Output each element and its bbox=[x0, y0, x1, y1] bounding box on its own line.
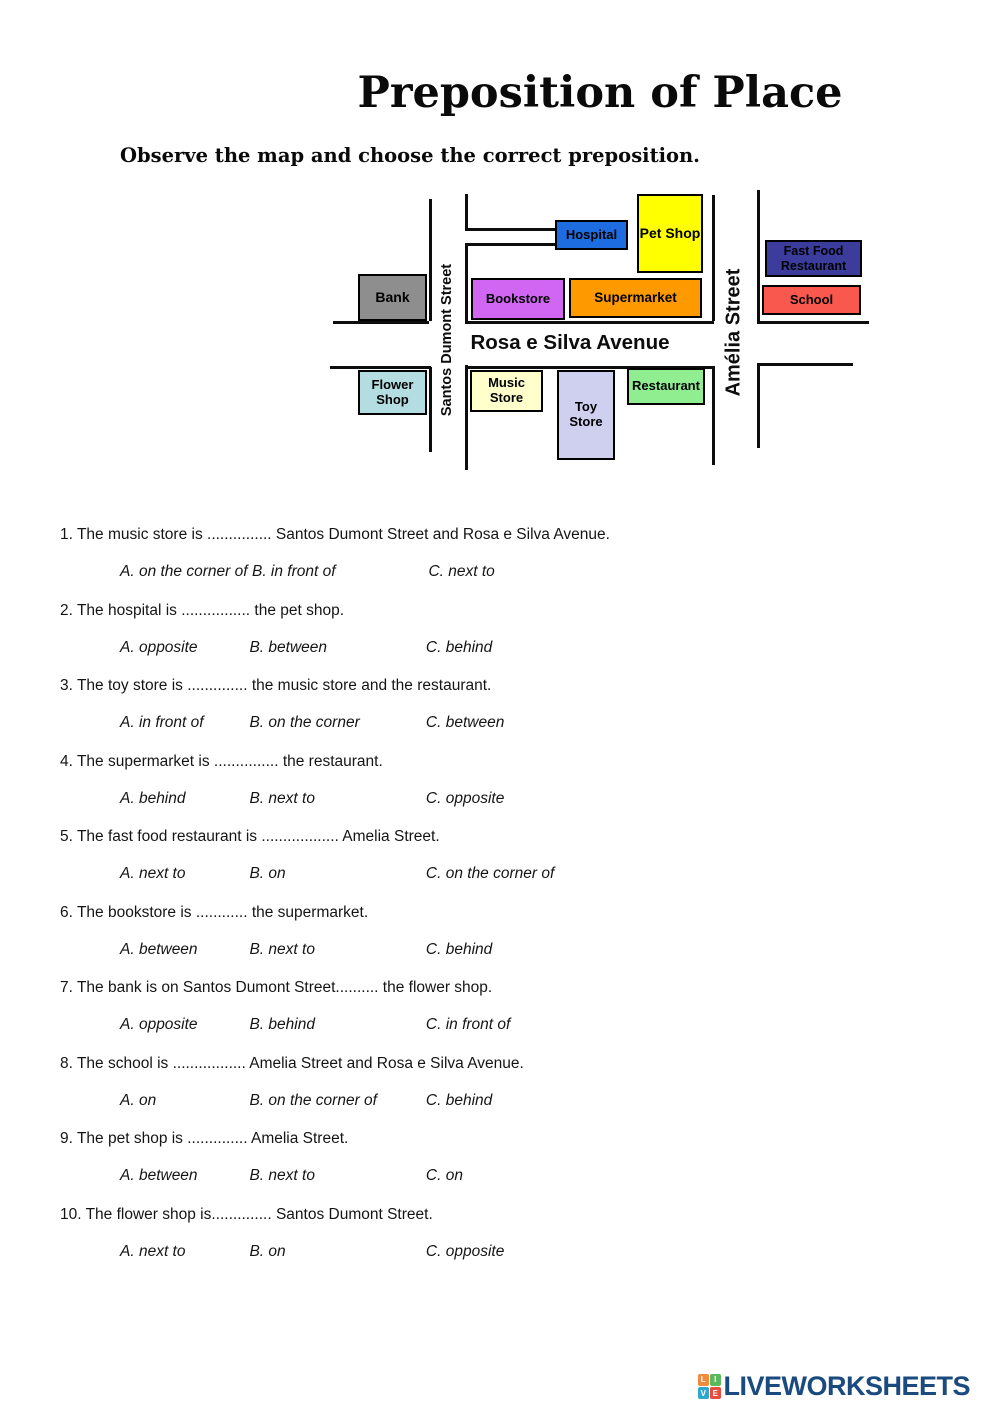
option-c[interactable]: C. on bbox=[426, 1167, 463, 1185]
street-line bbox=[712, 195, 715, 321]
logo-tile-i: I bbox=[710, 1374, 721, 1386]
building-label: Toy Store bbox=[559, 400, 613, 430]
street-line bbox=[429, 367, 432, 452]
option-b[interactable]: B. next to bbox=[249, 1167, 421, 1185]
building-label: Bookstore bbox=[486, 292, 550, 307]
option-c[interactable]: C. between bbox=[426, 714, 504, 732]
street-line bbox=[757, 190, 760, 321]
street-line bbox=[712, 366, 715, 465]
street-line bbox=[465, 365, 468, 470]
option-c[interactable]: C. behind bbox=[426, 639, 492, 657]
question-text: 7. The bank is on Santos Dumont Street..… bbox=[60, 979, 492, 997]
street-line bbox=[465, 194, 468, 229]
street-line bbox=[429, 199, 432, 321]
option-a[interactable]: A. next to bbox=[120, 865, 245, 883]
option-b[interactable]: B. behind bbox=[249, 1016, 421, 1034]
question-8: 8. The school is ................. Ameli… bbox=[60, 1055, 960, 1131]
question-text: 4. The supermarket is ............... th… bbox=[60, 753, 383, 771]
instruction-text: Observe the map and choose the correct p… bbox=[120, 144, 700, 167]
option-a[interactable]: A. opposite bbox=[120, 639, 245, 657]
question-text: 9. The pet shop is .............. Amelia… bbox=[60, 1130, 348, 1148]
option-c[interactable]: C. opposite bbox=[426, 1243, 504, 1261]
street-line bbox=[333, 321, 429, 324]
question-text: 10. The flower shop is.............. San… bbox=[60, 1206, 433, 1224]
street-line bbox=[465, 321, 714, 324]
question-options: A. in front of B. on the corner C. betwe… bbox=[120, 714, 504, 732]
question-options: A. opposite B. behind C. in front of bbox=[120, 1016, 510, 1034]
question-options: A. on the corner of B. in front of C. ne… bbox=[120, 563, 495, 581]
option-b[interactable]: B. on bbox=[249, 865, 421, 883]
building-fast-food-restaurant: Fast Food Restaurant bbox=[765, 240, 862, 277]
street-label-amelia: Amélia Street bbox=[723, 253, 746, 413]
option-b[interactable]: B. in front of bbox=[252, 563, 424, 581]
liveworksheets-grid-icon: L I V E bbox=[698, 1374, 721, 1400]
question-options: A. opposite B. between C. behind bbox=[120, 639, 492, 657]
question-options: A. between B. next to C. on bbox=[120, 1167, 463, 1185]
building-school: School bbox=[762, 285, 861, 315]
option-c[interactable]: C. behind bbox=[426, 1092, 492, 1110]
building-music-store: Music Store bbox=[470, 370, 543, 412]
question-list: 1. The music store is ............... Sa… bbox=[60, 526, 960, 1281]
street-line bbox=[465, 243, 468, 322]
building-supermarket: Supermarket bbox=[569, 278, 702, 318]
building-label: Restaurant bbox=[632, 379, 700, 394]
option-c[interactable]: C. on the corner of bbox=[426, 865, 554, 883]
street-line bbox=[757, 321, 869, 324]
question-options: A. next to B. on C. on the corner of bbox=[120, 865, 554, 883]
option-a[interactable]: A. between bbox=[120, 1167, 245, 1185]
question-9: 9. The pet shop is .............. Amelia… bbox=[60, 1130, 960, 1206]
option-b[interactable]: B. on the corner bbox=[249, 714, 421, 732]
option-b[interactable]: B. next to bbox=[249, 941, 421, 959]
street-line bbox=[330, 366, 431, 369]
question-text: 1. The music store is ............... Sa… bbox=[60, 526, 610, 544]
building-label: Hospital bbox=[566, 228, 617, 243]
building-label: School bbox=[790, 293, 833, 308]
logo-tile-v: V bbox=[698, 1387, 709, 1399]
option-a[interactable]: A. behind bbox=[120, 790, 245, 808]
building-label: Pet Shop bbox=[640, 225, 701, 241]
option-a[interactable]: A. opposite bbox=[120, 1016, 245, 1034]
building-hospital: Hospital bbox=[555, 220, 628, 250]
building-label: Flower Shop bbox=[360, 378, 425, 408]
option-b[interactable]: B. on bbox=[249, 1243, 421, 1261]
option-a[interactable]: A. on bbox=[120, 1092, 245, 1110]
map: Santos Dumont Street Amélia Street Rosa … bbox=[330, 185, 882, 477]
building-pet-shop: Pet Shop bbox=[637, 194, 703, 273]
option-c[interactable]: C. in front of bbox=[426, 1016, 510, 1034]
option-a[interactable]: A. between bbox=[120, 941, 245, 959]
question-2: 2. The hospital is ................ the … bbox=[60, 602, 960, 678]
question-options: A. on B. on the corner of C. behind bbox=[120, 1092, 492, 1110]
building-label: Supermarket bbox=[594, 290, 677, 306]
street-label-rosa-e-silva: Rosa e Silva Avenue bbox=[465, 331, 675, 355]
street-line bbox=[465, 228, 555, 231]
option-b[interactable]: B. next to bbox=[249, 790, 421, 808]
page-title: Preposition of Place bbox=[200, 68, 1000, 118]
question-text: 5. The fast food restaurant is .........… bbox=[60, 828, 440, 846]
building-label: Fast Food Restaurant bbox=[767, 244, 860, 273]
option-a[interactable]: A. on the corner of bbox=[120, 563, 248, 581]
option-c[interactable]: C. behind bbox=[426, 941, 492, 959]
option-c[interactable]: C. next to bbox=[428, 563, 494, 581]
street-line bbox=[465, 243, 555, 246]
brand-name: LIVEWORKSHEETS bbox=[724, 1371, 971, 1402]
question-6: 6. The bookstore is ............ the sup… bbox=[60, 904, 960, 980]
question-3: 3. The toy store is .............. the m… bbox=[60, 677, 960, 753]
option-a[interactable]: A. in front of bbox=[120, 714, 245, 732]
building-flower-shop: Flower Shop bbox=[358, 370, 427, 415]
street-line bbox=[757, 363, 853, 366]
question-options: A. next to B. on C. opposite bbox=[120, 1243, 504, 1261]
question-text: 8. The school is ................. Ameli… bbox=[60, 1055, 524, 1073]
building-bank: Bank bbox=[358, 274, 427, 321]
option-b[interactable]: B. between bbox=[249, 639, 421, 657]
question-5: 5. The fast food restaurant is .........… bbox=[60, 828, 960, 904]
option-a[interactable]: A. next to bbox=[120, 1243, 245, 1261]
question-1: 1. The music store is ............... Sa… bbox=[60, 526, 960, 602]
liveworksheets-logo[interactable]: L I V E LIVEWORKSHEETS bbox=[698, 1371, 970, 1402]
building-label: Bank bbox=[375, 289, 409, 305]
question-10: 10. The flower shop is.............. San… bbox=[60, 1206, 960, 1282]
street-line bbox=[757, 363, 760, 448]
building-restaurant: Restaurant bbox=[627, 368, 705, 405]
building-toy-store: Toy Store bbox=[557, 370, 615, 460]
building-label: Music Store bbox=[472, 376, 541, 406]
logo-tile-e: E bbox=[710, 1387, 721, 1399]
building-bookstore: Bookstore bbox=[471, 278, 565, 320]
option-b[interactable]: B. on the corner of bbox=[249, 1092, 421, 1110]
question-4: 4. The supermarket is ............... th… bbox=[60, 753, 960, 829]
question-options: A. behind B. next to C. opposite bbox=[120, 790, 504, 808]
logo-tile-l: L bbox=[698, 1374, 709, 1386]
question-options: A. between B. next to C. behind bbox=[120, 941, 492, 959]
question-text: 6. The bookstore is ............ the sup… bbox=[60, 904, 368, 922]
question-text: 3. The toy store is .............. the m… bbox=[60, 677, 491, 695]
question-text: 2. The hospital is ................ the … bbox=[60, 602, 344, 620]
street-label-santos-dumont: Santos Dumont Street bbox=[439, 260, 455, 420]
question-7: 7. The bank is on Santos Dumont Street..… bbox=[60, 979, 960, 1055]
option-c[interactable]: C. opposite bbox=[426, 790, 504, 808]
